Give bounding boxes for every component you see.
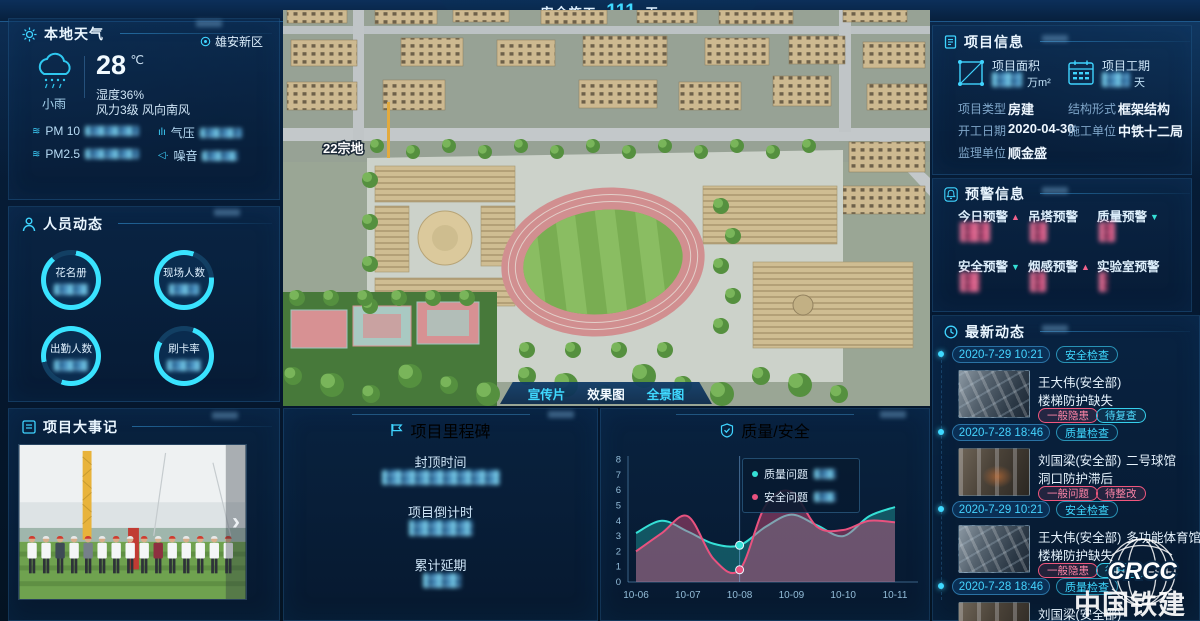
news-category-badge: 质量检查 (1056, 424, 1118, 441)
onsite-count-gauge: 现场人数 (154, 250, 214, 310)
chart-tooltip: 质量问题 安全问题 (742, 458, 860, 513)
issue-text: 洞口防护滞后 (1038, 468, 1113, 487)
noise-metric: ◁∙ 噪音 (158, 147, 238, 164)
pressure-icon: ılı (158, 127, 166, 138)
svg-text:8: 8 (616, 455, 621, 466)
sun-gear-icon (22, 27, 37, 42)
up-arrow-icon: ▲ (1081, 262, 1090, 272)
news-date-badge: 2020-7-28 18:46 (952, 578, 1050, 595)
safety-value-redacted (814, 492, 836, 502)
structure-type-value: 框架结构 (1118, 99, 1170, 118)
news-date-badge: 2020-7-29 10:21 (952, 346, 1050, 363)
pm-waves-icon: ≋ (32, 149, 40, 160)
today-warning-redacted (960, 222, 990, 242)
safety-series-label: 安全问题 (764, 489, 808, 505)
timeline-dot (938, 583, 944, 589)
site-3d-render[interactable]: 22宗地 (283, 10, 930, 406)
news-photo (958, 370, 1030, 418)
svg-text:10-11: 10-11 (883, 590, 908, 601)
topping-time-label: 封顶时间 (283, 452, 598, 471)
svg-text:10-06: 10-06 (623, 590, 649, 601)
countdown-label: 项目倒计时 (283, 502, 598, 521)
project-info-title: 项目信息 (964, 32, 1024, 52)
start-date-value: 2020-04-30 (1008, 121, 1075, 136)
pm25-metric: ≋ PM2.5 (32, 147, 139, 161)
region-selector[interactable]: 雄安新区 (200, 33, 263, 50)
pm10-value-redacted (85, 126, 139, 136)
timeline-dot (938, 429, 944, 435)
temperature: 28 ℃ (96, 50, 144, 81)
quality-value-redacted (814, 469, 836, 479)
location-icon (200, 36, 211, 47)
svg-text:3: 3 (616, 531, 621, 542)
crcc-logo: CRCC 中国铁建 (1068, 534, 1200, 621)
down-arrow-icon: ▼ (1150, 212, 1159, 222)
area-unit: 万m² (1027, 74, 1051, 90)
svg-text:4: 4 (616, 516, 621, 527)
pressure-metric: ılı 气压 (158, 124, 242, 141)
warnings-header: 预警信息 (944, 184, 1025, 204)
delay-redacted (423, 573, 461, 588)
svg-text:2: 2 (616, 546, 621, 557)
swipe-rate-gauge: 刷卡率 (154, 326, 214, 386)
noise-speaker-icon: ◁∙ (158, 150, 168, 161)
safety-series-dot (752, 494, 758, 500)
location-text: 二号球馆 (1126, 450, 1176, 469)
news-date-badge: 2020-7-29 10:21 (952, 501, 1050, 518)
shield-check-icon (720, 423, 734, 438)
news-title: 最新动态 (965, 322, 1025, 342)
svg-text:10-08: 10-08 (727, 590, 753, 601)
quality-safety-header: 质量/安全 (600, 418, 930, 442)
news-photo (958, 448, 1030, 496)
wind: 风力3级 风向南风 (96, 101, 190, 118)
render-view-button[interactable]: 效果图 (587, 384, 625, 403)
dashboard: 安全施工 111 天 (0, 0, 1200, 621)
events-title: 项目大事记 (43, 417, 118, 437)
area-measure-icon (956, 58, 986, 88)
quality-series-dot (752, 471, 758, 477)
supervisor-value: 顺金盛 (1008, 143, 1047, 162)
temperature-unit: ℃ (131, 53, 144, 67)
svg-text:10-07: 10-07 (675, 590, 701, 601)
swipe-rate-value-redacted (167, 360, 201, 371)
panorama-button[interactable]: 全景图 (647, 384, 685, 403)
photo-next-button[interactable]: › (232, 512, 240, 532)
safety-warning-redacted (960, 272, 980, 292)
quality-series-label: 质量问题 (764, 466, 808, 482)
inspector-name: 王大伟(安全部) (1038, 372, 1121, 391)
news-category-badge: 安全检查 (1056, 501, 1118, 518)
quality-warning-redacted (1099, 222, 1115, 242)
roster-value-redacted (54, 284, 88, 295)
temperature-value: 28 (96, 50, 126, 80)
timeline-dot (938, 351, 944, 357)
duration-unit: 天 (1134, 74, 1145, 90)
person-icon (22, 217, 36, 232)
project-type-value: 房建 (1008, 99, 1034, 118)
attendance-gauge: 出勤人数 (41, 326, 101, 386)
calendar-icon (1066, 58, 1096, 88)
document-icon (944, 35, 957, 49)
status-tag: 待整改 (1096, 486, 1146, 501)
weather-title: 本地天气 (44, 24, 104, 44)
timeline-dot (938, 506, 944, 512)
plot-label: 22宗地 (323, 141, 363, 156)
pressure-value-redacted (200, 128, 242, 138)
news-photo (958, 602, 1030, 621)
noise-value-redacted (202, 151, 238, 161)
alarm-bell-icon (944, 187, 958, 202)
lab-warning-redacted (1099, 272, 1108, 292)
delay-label: 累计延期 (283, 555, 598, 574)
weather-header: 本地天气 (22, 24, 104, 44)
svg-text:0: 0 (616, 577, 621, 588)
sports-courts (283, 292, 497, 406)
clock-icon (944, 325, 958, 339)
news-date-badge: 2020-7-28 18:46 (952, 424, 1050, 441)
svg-text:10-10: 10-10 (830, 590, 856, 601)
countdown-redacted (409, 520, 473, 536)
smoke-warning-redacted (1030, 272, 1046, 292)
issue-text: 楼梯防护缺失 (1038, 390, 1113, 409)
svg-text:10-09: 10-09 (779, 590, 805, 601)
svg-text:7: 7 (616, 470, 621, 481)
warnings-title: 预警信息 (965, 184, 1025, 204)
topping-time-redacted (382, 470, 500, 485)
milestone-header: 项目里程碑 (283, 418, 598, 442)
events-header: 项目大事记 (22, 417, 118, 437)
pm-waves-icon: ≋ (32, 126, 40, 137)
inspector-name: 刘国梁(安全部) (1038, 450, 1121, 469)
duration-value-redacted (1102, 72, 1130, 87)
onsite-value-redacted (169, 284, 199, 295)
weather-condition: 小雨 (30, 95, 78, 112)
down-arrow-icon: ▼ (1011, 262, 1020, 272)
contractor-value: 中铁十二局 (1118, 121, 1183, 140)
personnel-title: 人员动态 (43, 214, 103, 234)
news-photo (958, 525, 1030, 573)
milestone-title: 项目里程碑 (410, 418, 490, 442)
flag-icon (390, 423, 403, 437)
attendance-value-redacted (54, 360, 88, 371)
pm10-metric: ≋ PM 10 (32, 124, 139, 138)
scene-view-switcher: 宣传片 效果图 全景图 (500, 382, 712, 404)
up-arrow-icon: ▲ (1011, 212, 1020, 222)
personnel-header: 人员动态 (22, 214, 103, 234)
hazard-level-tag: 一般隐患 (1038, 408, 1098, 423)
svg-text:6: 6 (616, 485, 621, 496)
rain-cloud-icon (34, 52, 76, 92)
news-header: 最新动态 (944, 322, 1025, 342)
pm25-value-redacted (85, 149, 139, 159)
roster-gauge: 花名册 (41, 250, 101, 310)
promo-video-button[interactable]: 宣传片 (528, 384, 566, 403)
logo-brand: CRCC (1107, 558, 1177, 585)
region-label: 雄安新区 (215, 33, 263, 50)
memo-icon (22, 420, 36, 434)
status-tag: 待复查 (1096, 408, 1146, 423)
area-value-redacted (992, 72, 1022, 87)
svg-text:5: 5 (616, 501, 621, 512)
svg-text:1: 1 (616, 562, 621, 573)
project-info-header: 项目信息 (944, 32, 1024, 52)
crane-warning-redacted (1030, 222, 1047, 242)
news-category-badge: 安全检查 (1056, 346, 1118, 363)
hazard-level-tag: 一般问题 (1038, 486, 1098, 501)
quality-safety-title: 质量/安全 (741, 418, 809, 442)
milestone-photo[interactable] (18, 444, 247, 600)
logo-name: 中国铁建 (1074, 590, 1186, 620)
